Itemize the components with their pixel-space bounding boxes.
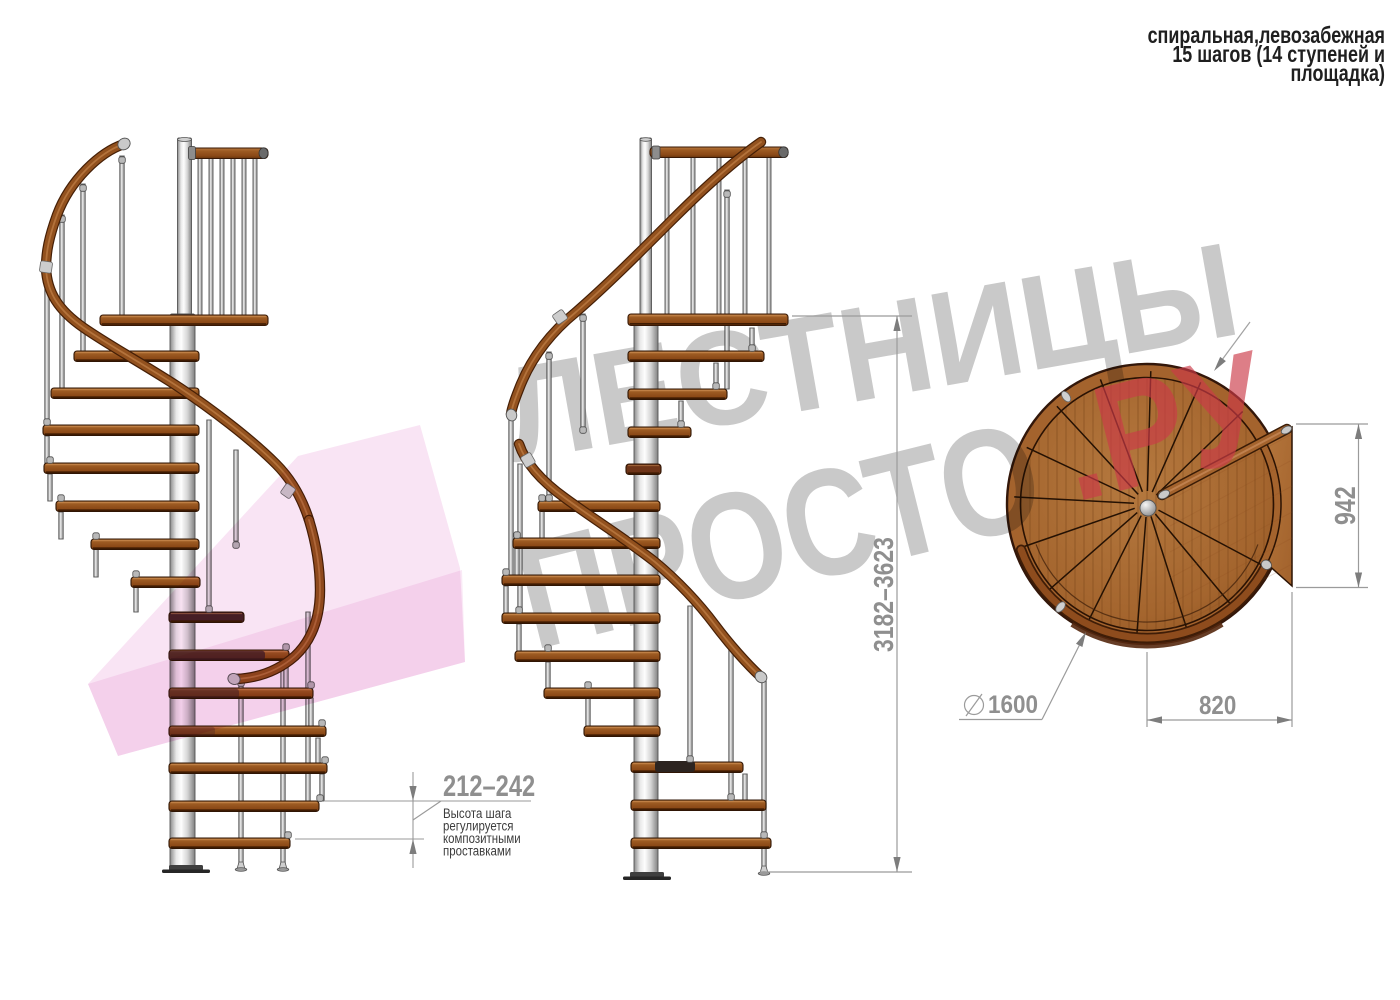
svg-text:1600: 1600: [988, 691, 1038, 719]
svg-text:942: 942: [1328, 486, 1361, 525]
svg-text:3182–3623: 3182–3623: [869, 537, 900, 652]
svg-text:проставками: проставками: [443, 844, 511, 859]
svg-text:212–242: 212–242: [443, 769, 535, 802]
svg-text:площадка): площадка): [1290, 61, 1385, 87]
svg-text:820: 820: [1199, 691, 1236, 720]
